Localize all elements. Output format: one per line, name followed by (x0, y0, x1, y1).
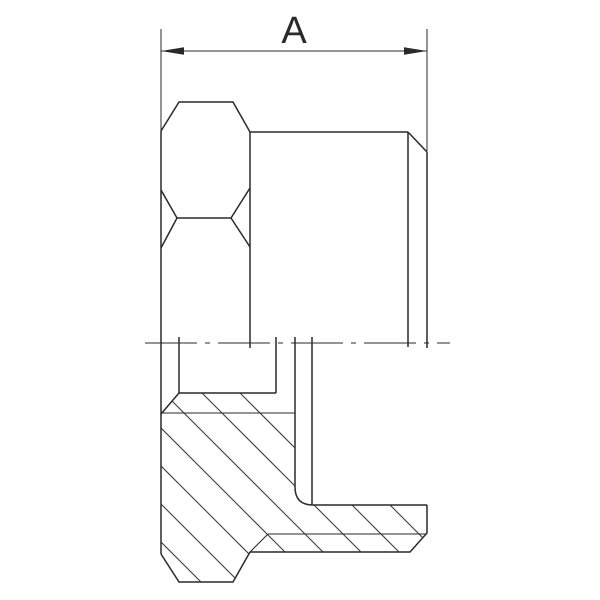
large-bore-end-wall-fillet (295, 337, 313, 505)
external-view-top (161, 102, 427, 554)
thread-runout-bevel (250, 534, 268, 552)
arrowhead-right-icon (404, 47, 427, 55)
drawing-canvas: A (0, 0, 600, 600)
hatch-line (140, 331, 445, 600)
small-hole-entry-chamfer (161, 393, 179, 414)
hex-cap-technical-drawing: A (0, 0, 600, 600)
hatch-line (140, 407, 445, 600)
hatch-line (140, 369, 445, 600)
hex-facet-upper-lines (161, 188, 250, 218)
dimension-label: A (281, 10, 307, 52)
body-end-chamfer-top (408, 132, 427, 152)
body-bottom-outline (250, 505, 427, 552)
hex-head-top-chamfer-outline (161, 102, 250, 132)
hex-facet-lower-lines (161, 218, 250, 248)
dimension-annotation: A (161, 10, 427, 151)
hatch-line (140, 217, 445, 522)
hex-head-bottom-chamfer-outline (161, 552, 250, 582)
arrowhead-left-icon (161, 47, 184, 55)
hatch-line (140, 255, 445, 560)
section-hatching (140, 217, 445, 600)
hatch-line (140, 521, 445, 600)
hatch-line (140, 445, 445, 600)
section-view-bottom (161, 337, 427, 582)
